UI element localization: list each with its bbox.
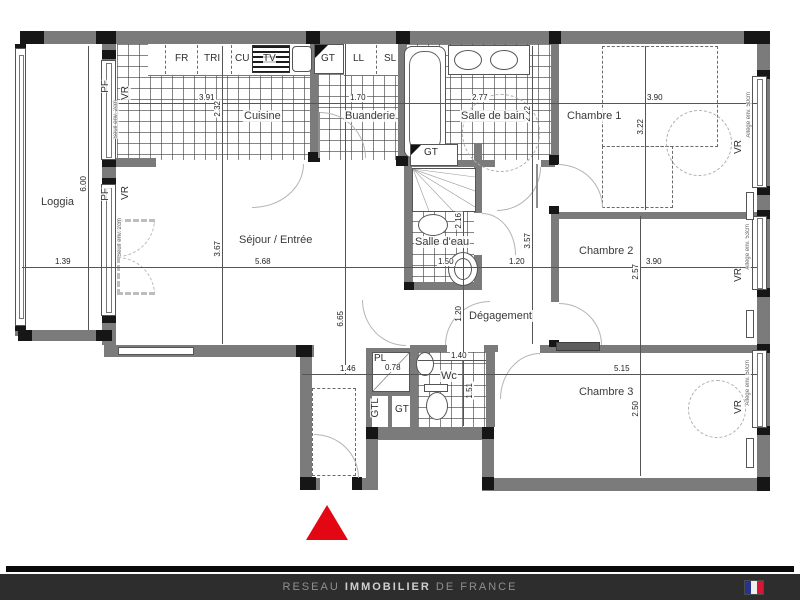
dim-sejour-h: 3.67 (214, 240, 222, 258)
door-arc-hall (362, 300, 406, 346)
window-frame (19, 55, 24, 319)
room-label-loggia: Loggia (40, 196, 75, 208)
brand-mid: IMMOBILIER (345, 581, 431, 593)
tag-cooking: CU (235, 53, 249, 64)
dim-cuisine-h: 2.32 (214, 100, 222, 118)
dim-sejour-w: 5.68 (254, 258, 272, 266)
wall-chambre2-left (551, 219, 559, 302)
wall-wc-top-right (484, 345, 498, 352)
dim-chain-bottom (302, 374, 757, 375)
tag-vr-chambre3: VR (733, 400, 744, 414)
washbasin-salle-deau (418, 214, 448, 236)
radiator-sejour (118, 347, 194, 355)
wall-entrance-right (366, 440, 378, 490)
tag-washer: LL (353, 53, 364, 64)
door-leaf-chambre1 (536, 164, 538, 208)
post (396, 156, 408, 166)
wardrobe-zone-chambre1-b (602, 146, 673, 208)
post (96, 31, 116, 44)
band-separator (231, 45, 232, 74)
tag-dryer: SL (384, 53, 396, 64)
dim-wc-w: 1.40 (450, 352, 468, 360)
brand-pre: RESEAU (283, 581, 340, 593)
dim-chambre3-h: 2.50 (632, 400, 640, 418)
window-chambre2 (752, 216, 767, 290)
tag-gt-kitchen: GT (321, 53, 335, 64)
entrance-arrow (306, 505, 348, 540)
post (549, 31, 561, 44)
dim-chambre2-w: 3.90 (645, 258, 663, 266)
post (404, 282, 414, 290)
dim-chambre1-w: 3.90 (646, 94, 664, 102)
room-label-salle-de-bain: Salle de bain (460, 110, 526, 122)
dim-chambre1-h: 3.22 (637, 118, 645, 136)
post (744, 31, 770, 44)
room-label-degagement: Dégagement (468, 310, 533, 322)
room-label-wc: Wc (440, 370, 458, 382)
window-loggia-exterior (15, 48, 26, 326)
wall-exterior-top (20, 31, 760, 44)
wall-chambre3-bottom (482, 478, 770, 491)
tag-gt-salle-deau: GT (424, 147, 438, 158)
tag-vr-cuisine: VR (120, 86, 131, 100)
brand-post: DE FRANCE (436, 581, 518, 593)
post (482, 477, 494, 490)
wall-chambre1-chambre2 (551, 212, 770, 219)
band-separator (376, 45, 377, 74)
door-arc-salle-de-bain (497, 167, 541, 211)
window-frame (106, 188, 113, 314)
window-pf-sejour (101, 184, 116, 316)
tag-gt-entrance: GT (395, 404, 409, 415)
room-label-chambre2: Chambre 2 (578, 245, 634, 257)
bathtub-inner (409, 51, 441, 153)
door-arc-salle-deau (482, 213, 516, 255)
dim-line-chambre1-v (645, 46, 646, 210)
band-separator (165, 45, 166, 74)
tag-tri: TRI (204, 53, 220, 64)
dim-salle-deau-w: 1.50 (437, 258, 455, 266)
tag-fridge: FR (175, 53, 188, 64)
room-label-cuisine: Cuisine (243, 110, 282, 122)
kitchen-sink (292, 46, 312, 72)
door-arc-cuisine (252, 164, 304, 208)
dim-line-loggia-v (88, 46, 89, 330)
dim-salle-deau-h: 2.16 (455, 212, 463, 230)
window-frame (757, 218, 764, 288)
dim-chambre2-h: 2.57 (632, 263, 640, 281)
french-flag-icon (744, 580, 764, 595)
dim-loggia-w: 1.39 (54, 258, 72, 266)
window-chambre3 (752, 350, 767, 428)
wall-entrance-left (300, 345, 312, 490)
turning-circle-chambre1 (666, 110, 732, 176)
window-frame (757, 79, 764, 186)
wall-wc-chambre3 (486, 352, 495, 427)
shower (412, 168, 476, 212)
washbasin-left (454, 50, 482, 70)
post (300, 477, 316, 490)
room-label-sejour: Séjour / Entrée (238, 234, 313, 246)
note-allege-chambre2: Allège env. 53cm (745, 224, 751, 270)
toilet-wc (426, 392, 448, 420)
dim-chain-middle (22, 267, 757, 268)
dim-line-left-v (222, 46, 223, 344)
washbasin-right (490, 50, 518, 70)
dim-line-wc (418, 360, 486, 361)
dim-line-sdb-v (532, 46, 533, 344)
room-label-chambre3: Chambre 3 (578, 386, 634, 398)
window-chambre1 (752, 76, 767, 188)
footer-brand: RESEAU IMMOBILIER DE FRANCE (0, 574, 800, 600)
post (296, 345, 312, 357)
tag-pf-cuisine: PF (100, 80, 111, 93)
door-arc-chambre1 (558, 164, 603, 208)
room-label-placard: PL (374, 353, 386, 364)
washbasin-wc (416, 352, 434, 376)
note-allege-chambre3: Allège env. 50cm (745, 360, 751, 406)
post (20, 31, 44, 44)
footer-divider (6, 566, 794, 572)
wall-under-wc (366, 427, 494, 440)
toilet-tank (424, 384, 448, 392)
dim-line-center-v (345, 44, 346, 374)
dim-line-chambre23-v (640, 216, 641, 476)
door-arc-wc (445, 301, 490, 345)
dim-entree-w: 1.46 (339, 365, 357, 373)
room-label-chambre1: Chambre 1 (566, 110, 622, 122)
wall-wc-top-left (410, 345, 447, 352)
post (482, 427, 494, 439)
room-label-buanderie: Buanderie (344, 110, 396, 122)
dim-loggia-h: 6.00 (80, 175, 88, 193)
window-frame (106, 63, 113, 158)
window-cap (102, 50, 116, 59)
tag-gtl: GTL (370, 398, 381, 417)
tag-vr-chambre2: VR (733, 268, 744, 282)
dim-degagement-h: 3.57 (524, 232, 532, 250)
note-seuil-cuisine: Seuil env. 2cm (113, 100, 119, 139)
door-arc-chambre3 (500, 353, 540, 399)
dim-buanderie-w: 1.70 (349, 94, 367, 102)
dim-placard-w: 0.78 (384, 364, 402, 372)
wall-gtl-gt-divider (388, 396, 392, 427)
dim-chambre3-w: 5.15 (613, 365, 631, 373)
floor-plan-canvas: 3.91 1.70 2.77 3.90 1.39 5.68 1.50 1.20 … (0, 0, 800, 600)
post (352, 477, 362, 490)
tag-pf-sejour: PF (100, 188, 111, 201)
radiator-chambre2 (746, 310, 754, 338)
band-separator (197, 45, 198, 74)
dim-degagement-w: 1.20 (508, 258, 526, 266)
window-swing-sejour-b (117, 257, 155, 295)
tag-tv: TV (263, 53, 276, 64)
note-seuil-sejour: Seuil env. 2cm (117, 218, 123, 257)
post (396, 31, 410, 44)
dim-sdb-w: 2.77 (471, 94, 489, 102)
note-allege-chambre1: Allège env. 50cm (746, 92, 752, 138)
window-frame (757, 353, 764, 427)
post (96, 330, 112, 341)
radiator-chambre1 (746, 192, 754, 220)
dim-sejour-h-total: 6.65 (337, 310, 345, 328)
radiator-chambre3 (746, 438, 754, 468)
post (366, 427, 378, 439)
tag-vr-sejour: VR (120, 186, 131, 200)
duct-fold (411, 145, 421, 155)
bathtub (404, 46, 446, 158)
post (18, 330, 32, 341)
dim-wc-h: 1.51 (466, 382, 474, 400)
footer-bar: RESEAU IMMOBILIER DE FRANCE (0, 574, 800, 600)
door-arc-chambre2 (559, 303, 602, 345)
tag-vr-chambre1: VR (733, 140, 744, 154)
room-label-salle-deau: Salle d'eau (414, 236, 470, 248)
dim-degagement-h2: 1.20 (455, 305, 463, 323)
post (306, 31, 320, 44)
post (757, 477, 770, 491)
